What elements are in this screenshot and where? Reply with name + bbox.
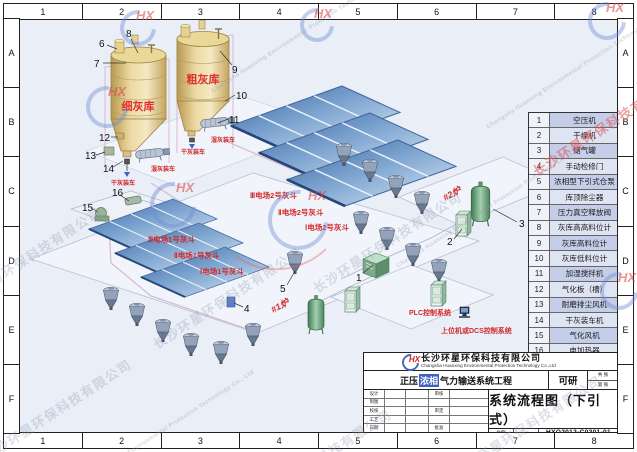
legend-no: 7 bbox=[529, 205, 550, 219]
plane-label: Ⅰ电场1号灰斗 bbox=[200, 266, 244, 276]
legend-no: 13 bbox=[529, 298, 550, 312]
legend-label: 干灰装车机 bbox=[550, 313, 619, 327]
legend-no: 4 bbox=[529, 159, 550, 173]
ruler-row: F bbox=[4, 365, 19, 433]
svg-text:14: 14 bbox=[103, 164, 115, 175]
legend-label: 灰库低料位计 bbox=[550, 251, 619, 265]
legend-label: 压力真空释放阀 bbox=[550, 205, 619, 219]
legend-label: 空压机 bbox=[550, 113, 619, 127]
dry-loading-label: 干灰装车 bbox=[181, 148, 205, 156]
legend-label: 耐磨排尘风机 bbox=[550, 298, 619, 312]
manual-access-door bbox=[227, 297, 235, 307]
plane-label: Ⅱ电场2号灰斗 bbox=[278, 207, 324, 217]
legend-label: 灰库高高料位计 bbox=[550, 221, 619, 235]
ruler-row: B bbox=[618, 88, 633, 157]
plc-cabinet bbox=[345, 287, 360, 312]
legend-no: 15 bbox=[529, 328, 550, 342]
ruler-col: 2 bbox=[83, 433, 162, 448]
ruler-top: 1 2 3 4 5 6 7 8 bbox=[3, 3, 634, 20]
drawing-title: 系统流程图（下引式） bbox=[489, 390, 618, 428]
project-name: 正压浓相气力输送系统工程 bbox=[364, 371, 549, 389]
ruler-col: 3 bbox=[162, 4, 241, 19]
ruler-col: 8 bbox=[555, 4, 633, 19]
logo-hx-text: HX bbox=[409, 355, 420, 364]
legend-row: 13耐磨排尘风机 bbox=[529, 298, 619, 313]
wet-loading-label: 湿灰装车 bbox=[211, 136, 235, 144]
ruler-col: 2 bbox=[83, 4, 162, 19]
drawing-area: Ⅲ电场2号灰斗 Ⅱ电场2号灰斗 Ⅰ电场2号灰斗 Ⅲ电场1号灰斗 Ⅱ电场1号灰斗 … bbox=[18, 18, 619, 434]
coarse-silo-label: 粗灰库 bbox=[187, 72, 220, 86]
ruler-col: 7 bbox=[477, 4, 556, 19]
title-block: HX 长沙环星环保科技有限公司 Changsha Huanxing Enviro… bbox=[363, 352, 619, 434]
plc-cabinet bbox=[431, 281, 446, 306]
sheet-count: 共 张 第 张 bbox=[588, 371, 618, 389]
plane-label: Ⅲ电场2号灰斗 bbox=[250, 190, 297, 200]
legend-row: 3储气罐 bbox=[529, 144, 619, 159]
ruler-left: A B C D E F bbox=[3, 18, 20, 434]
legend-label: 浓相型下引式仓泵 bbox=[550, 175, 619, 189]
svg-text:16: 16 bbox=[112, 188, 124, 199]
air-dryer bbox=[456, 211, 471, 236]
legend-row: 10灰库低料位计 bbox=[529, 251, 619, 266]
sheet-index: 第 张 bbox=[588, 381, 618, 390]
equipment-legend: 1空压机 2干燥机 3储气罐 4手动检修门 5浓相型下引式仓泵 6库顶除尘器 7… bbox=[528, 112, 619, 359]
legend-no: 8 bbox=[529, 221, 550, 235]
legend-row: 1空压机 bbox=[529, 113, 619, 128]
dry-loading-label: 干灰装车 bbox=[111, 179, 135, 187]
legend-no: 14 bbox=[529, 313, 550, 327]
svg-text:8: 8 bbox=[126, 29, 132, 40]
ruler-row: D bbox=[4, 227, 19, 296]
fine-silo-label: 细灰库 bbox=[122, 99, 155, 113]
legend-row: 9灰库高料位计 bbox=[529, 236, 619, 251]
ruler-row: C bbox=[4, 157, 19, 226]
project-pre: 正压 bbox=[400, 374, 418, 387]
callout-6: 6 bbox=[99, 39, 117, 50]
ruler-row: A bbox=[618, 19, 633, 88]
legend-row: 6库顶除尘器 bbox=[529, 190, 619, 205]
svg-text:9: 9 bbox=[232, 65, 238, 76]
ruler-row: E bbox=[618, 296, 633, 365]
svg-text:1: 1 bbox=[356, 273, 362, 284]
legend-row: 11加湿搅拌机 bbox=[529, 267, 619, 282]
plc-system-label: PLC控制系统 bbox=[409, 308, 451, 317]
legend-label: 储气罐 bbox=[550, 144, 619, 158]
callout-14: 14 bbox=[103, 161, 123, 175]
legend-no: 11 bbox=[529, 267, 550, 281]
ruler-col: 5 bbox=[319, 4, 398, 19]
title-block-company-row: HX 长沙环星环保科技有限公司 Changsha Huanxing Enviro… bbox=[364, 353, 618, 371]
legend-no: 1 bbox=[529, 113, 550, 127]
truck-load-arrow bbox=[124, 172, 130, 177]
svg-text:3: 3 bbox=[519, 219, 525, 230]
svg-text:12: 12 bbox=[99, 133, 111, 144]
svg-text:7: 7 bbox=[94, 59, 100, 70]
legend-label: 气化风机 bbox=[550, 328, 619, 342]
legend-row: 8灰库高高料位计 bbox=[529, 221, 619, 236]
host-computer bbox=[459, 307, 470, 318]
legend-label: 库顶除尘器 bbox=[550, 190, 619, 204]
ruler-col: 1 bbox=[4, 4, 83, 19]
ruler-right: A B C D E F bbox=[617, 18, 634, 434]
svg-text:2: 2 bbox=[447, 237, 453, 248]
ruler-col: 5 bbox=[319, 433, 398, 448]
plane-label: Ⅲ电场1号灰斗 bbox=[148, 234, 195, 244]
legend-no: 3 bbox=[529, 144, 550, 158]
sheet-total: 共 张 bbox=[588, 371, 618, 381]
ruler-col: 1 bbox=[4, 433, 83, 448]
svg-text:6: 6 bbox=[99, 39, 105, 50]
svg-text:4: 4 bbox=[244, 304, 250, 315]
legend-row: 15气化风机 bbox=[529, 328, 619, 343]
company-logo: HX bbox=[402, 354, 417, 369]
legend-no: 10 bbox=[529, 251, 550, 265]
plane-label: Ⅱ电场1号灰斗 bbox=[174, 250, 220, 260]
dcs-system-label: 上位机或DCS控制系统 bbox=[441, 326, 512, 335]
legend-row: 5浓相型下引式仓泵 bbox=[529, 175, 619, 190]
legend-label: 加湿搅拌机 bbox=[550, 267, 619, 281]
legend-row: 7压力真空释放阀 bbox=[529, 205, 619, 220]
ruler-col: 3 bbox=[162, 433, 241, 448]
title-block-project-row: 正压浓相气力输送系统工程 可研 共 张 第 张 bbox=[364, 371, 618, 390]
company-name-en: Changsha Huanxing Environmental Protecti… bbox=[421, 364, 556, 369]
engineering-drawing-sheet: 1 2 3 4 5 6 7 8 1 2 3 4 5 6 7 8 A B C D … bbox=[0, 0, 637, 452]
svg-text:13: 13 bbox=[85, 151, 97, 162]
legend-label: 灰库高料位计 bbox=[550, 236, 619, 250]
legend-no: 12 bbox=[529, 282, 550, 296]
ruler-row: F bbox=[618, 365, 633, 433]
svg-text:10: 10 bbox=[236, 91, 248, 102]
ruler-col: 6 bbox=[398, 4, 477, 19]
legend-row: 14干灰装车机 bbox=[529, 313, 619, 328]
svg-text:11: 11 bbox=[229, 115, 240, 126]
legend-no: 2 bbox=[529, 128, 550, 142]
legend-no: 9 bbox=[529, 236, 550, 250]
ruler-row: B bbox=[4, 88, 19, 157]
callout-3: 3 bbox=[493, 209, 525, 230]
ruler-row: D bbox=[618, 227, 633, 296]
legend-no: 5 bbox=[529, 175, 550, 189]
legend-row: 2干燥机 bbox=[529, 128, 619, 143]
design-stage: 可研 bbox=[549, 371, 588, 389]
signature-grid: 设计审核 制图 校核审定 工艺 日期批准 bbox=[364, 390, 489, 432]
ruler-col: 6 bbox=[398, 433, 477, 448]
air-tank bbox=[308, 296, 324, 335]
wet-loading-label: 湿灰装车 bbox=[151, 165, 175, 173]
ruler-col: 8 bbox=[555, 433, 633, 448]
project-post: 气力输送系统工程 bbox=[440, 374, 512, 387]
legend-row: 12气化板（槽） bbox=[529, 282, 619, 297]
air-tank bbox=[471, 182, 489, 226]
legend-label: 手动检修门 bbox=[550, 159, 619, 173]
legend-row: 4手动检修门 bbox=[529, 159, 619, 174]
legend-no: 6 bbox=[529, 190, 550, 204]
legend-label: 干燥机 bbox=[550, 128, 619, 142]
svg-text:15: 15 bbox=[82, 203, 94, 214]
svg-text:5: 5 bbox=[280, 284, 286, 295]
ruler-row: E bbox=[4, 296, 19, 365]
ruler-col: 4 bbox=[240, 4, 319, 19]
plane-label: Ⅰ电场2号灰斗 bbox=[305, 222, 349, 232]
project-highlight: 浓相 bbox=[419, 374, 439, 387]
legend-label: 气化板（槽） bbox=[550, 282, 619, 296]
ruler-row: A bbox=[4, 19, 19, 88]
ruler-col: 7 bbox=[477, 433, 556, 448]
ruler-row: C bbox=[618, 157, 633, 226]
ruler-col: 4 bbox=[240, 433, 319, 448]
ruler-bottom: 1 2 3 4 5 6 7 8 bbox=[3, 432, 634, 449]
